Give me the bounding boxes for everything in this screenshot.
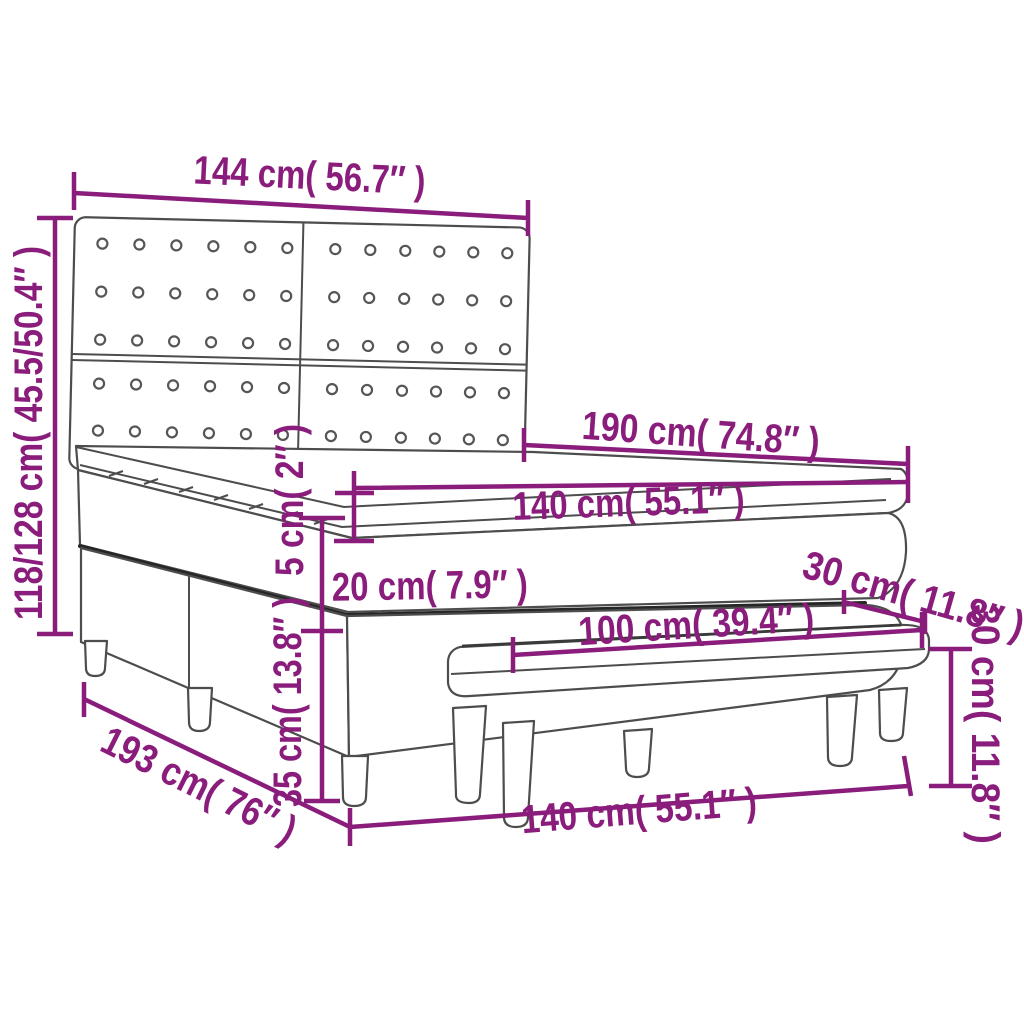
headboard-button bbox=[131, 379, 141, 389]
headboard-button bbox=[502, 248, 512, 258]
headboard-button bbox=[501, 296, 511, 306]
headboard-button bbox=[329, 292, 339, 302]
headboard-button bbox=[96, 287, 106, 297]
headboard-button bbox=[245, 242, 255, 252]
headboard-button bbox=[244, 290, 254, 300]
headboard-button bbox=[280, 339, 290, 349]
headboard-button bbox=[243, 338, 253, 348]
headboard-button bbox=[362, 385, 372, 395]
dim-label: 144 cm( 56.7″ ) bbox=[193, 148, 427, 203]
dim-label: 140 cm( 55.1″ ) bbox=[520, 780, 759, 842]
headboard-button bbox=[498, 435, 508, 445]
dimension-diagram: 144 cm( 56.7″ ) 118/128 cm( 45.5/50.4″ )… bbox=[0, 0, 1024, 1024]
headboard-button bbox=[434, 246, 444, 256]
headboard-button bbox=[398, 342, 408, 352]
headboard-button bbox=[208, 241, 218, 251]
headboard-button bbox=[205, 381, 215, 391]
headboard-button bbox=[206, 337, 216, 347]
headboard-button bbox=[364, 293, 374, 303]
dim-label: 30 cm( 11.8″ ) bbox=[963, 604, 1007, 844]
headboard-button bbox=[130, 426, 140, 436]
headboard-button bbox=[466, 343, 476, 353]
bench-leg bbox=[624, 729, 652, 777]
dim-bed-height-range: 118/128 cm( 45.5/50.4″ ) bbox=[7, 218, 73, 634]
bench-leg bbox=[453, 706, 486, 803]
headboard-button bbox=[279, 383, 289, 393]
bed-leg bbox=[188, 688, 212, 731]
headboard-button bbox=[365, 245, 375, 255]
headboard-button bbox=[397, 386, 407, 396]
headboard-button bbox=[97, 239, 107, 249]
headboard-button bbox=[170, 288, 180, 298]
dim-label: 5 cm( 2″ ) bbox=[268, 424, 312, 576]
headboard-button bbox=[207, 289, 217, 299]
headboard-button bbox=[282, 243, 292, 253]
headboard-button bbox=[328, 340, 338, 350]
headboard-button bbox=[326, 431, 336, 441]
headboard-button bbox=[171, 240, 181, 250]
dim-label: 118/128 cm( 45.5/50.4″ ) bbox=[7, 246, 51, 620]
headboard-button bbox=[204, 428, 214, 438]
headboard-button bbox=[433, 294, 443, 304]
headboard-button bbox=[93, 425, 103, 435]
headboard-button bbox=[95, 335, 105, 345]
bed-leg bbox=[85, 641, 107, 676]
headboard-button bbox=[134, 239, 144, 249]
headboard-button bbox=[400, 246, 410, 256]
headboard-button bbox=[467, 295, 477, 305]
bench-leg bbox=[879, 688, 907, 741]
headboard-button bbox=[363, 341, 373, 351]
headboard-button bbox=[327, 384, 337, 394]
headboard-button bbox=[330, 244, 340, 254]
bed-drawing bbox=[69, 217, 908, 806]
headboard-button bbox=[169, 336, 179, 346]
headboard-button bbox=[132, 335, 142, 345]
headboard-button bbox=[432, 342, 442, 352]
headboard-button bbox=[168, 380, 178, 390]
dim-label: 35 cm( 13.8″ ) bbox=[266, 597, 310, 807]
headboard-button bbox=[465, 387, 475, 397]
headboard-button bbox=[464, 434, 474, 444]
dim-label: 140 cm( 55.1″ ) bbox=[512, 477, 745, 529]
headboard-button bbox=[241, 429, 251, 439]
bench-leg bbox=[827, 695, 857, 766]
headboard-button bbox=[133, 287, 143, 297]
bed-leg bbox=[342, 756, 368, 806]
headboard-button bbox=[468, 247, 478, 257]
headboard-button bbox=[167, 427, 177, 437]
headboard-button bbox=[431, 386, 441, 396]
headboard-button bbox=[396, 433, 406, 443]
headboard-button bbox=[361, 432, 371, 442]
headboard-button bbox=[242, 382, 252, 392]
headboard-button bbox=[399, 294, 409, 304]
dim-label: 20 cm( 7.9″ ) bbox=[331, 562, 528, 609]
dim-bench-height: 30 cm( 11.8″ ) bbox=[929, 604, 1007, 844]
headboard-button bbox=[430, 433, 440, 443]
headboard-button bbox=[94, 378, 104, 388]
headboard-button bbox=[281, 291, 291, 301]
headboard-button bbox=[499, 388, 509, 398]
headboard-button bbox=[500, 344, 510, 354]
